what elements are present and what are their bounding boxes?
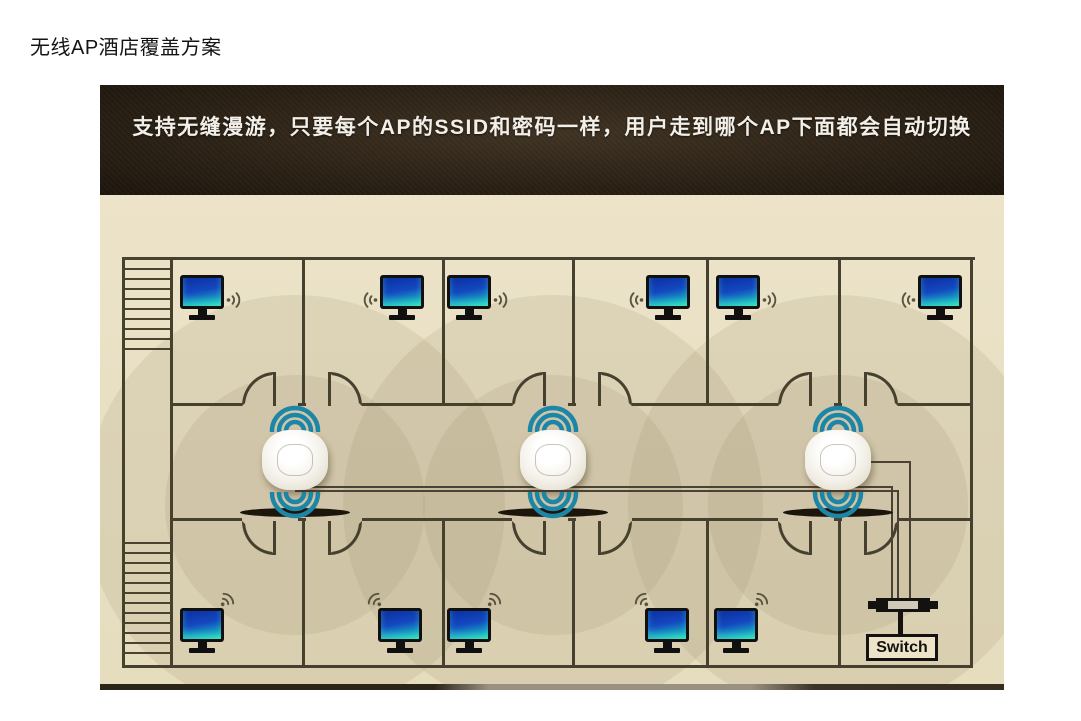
wifi-wave-icon — [810, 405, 866, 432]
corridor-wall — [632, 403, 778, 406]
monitor-base — [725, 315, 751, 320]
monitor-icon — [180, 275, 224, 322]
page-title: 无线AP酒店覆盖方案 — [30, 31, 222, 60]
monitor-stand — [664, 308, 673, 315]
wifi-signal-icon — [894, 288, 918, 312]
monitor-icon — [918, 275, 962, 322]
monitor-screen — [645, 608, 689, 642]
room-wall — [302, 257, 305, 406]
monitor-base — [389, 315, 415, 320]
door-leaf — [598, 521, 601, 555]
monitor-screen — [378, 608, 422, 642]
outer-wall-top — [122, 257, 975, 260]
monitor-stand — [198, 308, 207, 315]
monitor-icon — [645, 608, 689, 655]
monitor-screen — [380, 275, 424, 309]
monitor-screen — [180, 608, 224, 642]
monitor-stand — [663, 641, 672, 648]
monitor-stand — [198, 641, 207, 648]
switch-label-text: Switch — [876, 639, 928, 657]
staircase-top — [122, 258, 170, 354]
wifi-signal-icon — [760, 288, 784, 312]
wifi-signal-icon — [491, 288, 515, 312]
network-switch-stem — [898, 612, 903, 634]
room-wall — [838, 257, 841, 406]
wifi-wave-icon — [267, 405, 323, 432]
stairwell-wall — [170, 257, 173, 668]
monitor-base — [189, 315, 215, 320]
wireless-ap-icon — [805, 430, 871, 490]
monitor-base — [387, 648, 413, 653]
corridor-wall — [362, 518, 512, 521]
door-leaf — [328, 372, 331, 406]
monitor-base — [654, 648, 680, 653]
solution-diagram: 支持无缝漫游，只要每个AP的SSID和密码一样，用户走到哪个AP下面都会自动切换… — [100, 85, 1004, 690]
outer-wall-bottom — [122, 665, 973, 668]
banner: 支持无缝漫游，只要每个AP的SSID和密码一样，用户走到哪个AP下面都会自动切换 — [100, 85, 1004, 195]
door-leaf — [809, 372, 812, 406]
staircase-bottom — [122, 542, 170, 656]
monitor-icon — [378, 608, 422, 655]
wifi-wave-icon — [525, 405, 581, 432]
corridor-wall — [632, 518, 778, 521]
lan-cable — [295, 486, 893, 488]
monitor-screen — [180, 275, 224, 309]
monitor-icon — [447, 608, 491, 655]
monitor-icon — [714, 608, 758, 655]
monitor-icon — [180, 608, 224, 655]
network-switch-cap-right — [929, 601, 938, 609]
monitor-base — [456, 315, 482, 320]
room-wall — [442, 518, 445, 668]
room-wall — [706, 257, 709, 406]
monitor-stand — [398, 308, 407, 315]
door-leaf — [864, 372, 867, 406]
corridor-wall — [170, 518, 242, 521]
corridor-wall — [898, 403, 972, 406]
door-leaf — [598, 372, 601, 406]
network-switch-cap-left — [868, 601, 877, 609]
door-leaf — [543, 521, 546, 555]
network-switch-slot — [888, 601, 918, 609]
door-leaf — [273, 521, 276, 555]
wifi-wave-icon — [525, 492, 581, 519]
monitor-base — [655, 315, 681, 320]
outer-wall-right — [970, 257, 973, 668]
wireless-ap-icon — [520, 430, 586, 490]
monitor-icon — [646, 275, 690, 322]
bottom-shadow-strip — [100, 684, 1004, 690]
monitor-screen — [716, 275, 760, 309]
room-wall — [838, 518, 841, 668]
lan-cable — [891, 486, 893, 598]
room-wall — [302, 518, 305, 668]
monitor-stand — [396, 641, 405, 648]
monitor-base — [927, 315, 953, 320]
door-leaf — [328, 521, 331, 555]
lan-cable — [897, 490, 899, 598]
wifi-wave-icon — [267, 492, 323, 519]
monitor-icon — [380, 275, 424, 322]
monitor-screen — [447, 608, 491, 642]
door-leaf — [864, 521, 867, 555]
room-wall — [442, 257, 445, 406]
room-wall — [572, 518, 575, 668]
wireless-ap-icon — [262, 430, 328, 490]
room-wall — [572, 257, 575, 406]
monitor-screen — [447, 275, 491, 309]
monitor-stand — [936, 308, 945, 315]
monitor-screen — [714, 608, 758, 642]
corridor-wall — [362, 403, 512, 406]
lan-cable — [295, 490, 899, 492]
monitor-icon — [447, 275, 491, 322]
wifi-signal-icon — [622, 288, 646, 312]
door-leaf — [273, 372, 276, 406]
monitor-icon — [716, 275, 760, 322]
monitor-screen — [918, 275, 962, 309]
monitor-stand — [465, 308, 474, 315]
monitor-stand — [734, 308, 743, 315]
monitor-screen — [646, 275, 690, 309]
lan-cable — [909, 461, 911, 598]
monitor-stand — [465, 641, 474, 648]
monitor-base — [456, 648, 482, 653]
switch-label: Switch — [866, 634, 938, 661]
room-wall — [706, 518, 709, 668]
corridor-wall — [170, 403, 242, 406]
banner-text: 支持无缝漫游，只要每个AP的SSID和密码一样，用户走到哪个AP下面都会自动切换 — [132, 111, 971, 141]
wifi-signal-icon — [224, 288, 248, 312]
floor-plan: Switch — [100, 195, 1004, 690]
monitor-base — [189, 648, 215, 653]
door-leaf — [809, 521, 812, 555]
monitor-stand — [732, 641, 741, 648]
door-leaf — [543, 372, 546, 406]
wifi-wave-icon — [810, 492, 866, 519]
monitor-base — [723, 648, 749, 653]
wifi-signal-icon — [356, 288, 380, 312]
